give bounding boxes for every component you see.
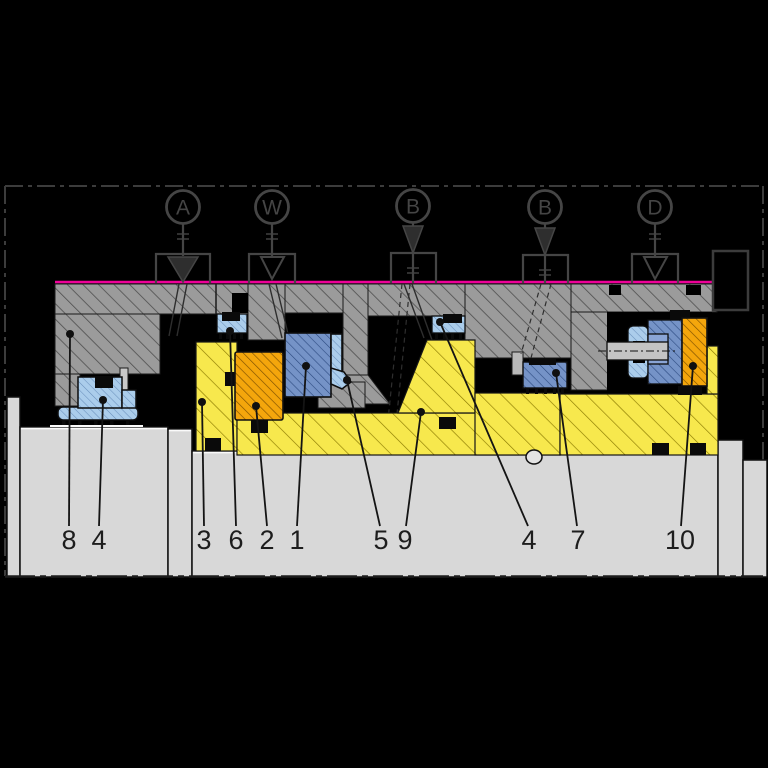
- part-label-10: 10: [665, 525, 695, 555]
- shaft-segment-3: [192, 451, 718, 577]
- shaft-step-right-1: [718, 440, 743, 577]
- part-label-2: 2: [259, 525, 274, 555]
- part-label-5: 5: [373, 525, 388, 555]
- part-label-4-left: 4: [91, 525, 106, 555]
- primary-ring-assembly: [285, 333, 351, 397]
- part-label-1: 1: [289, 525, 304, 555]
- seat-ring-right: [682, 318, 707, 386]
- shaft-groove-notch: [526, 450, 542, 464]
- part-label-3: 3: [196, 525, 211, 555]
- equipment-outline-box: [713, 251, 748, 310]
- part-label-8: 8: [61, 525, 76, 555]
- shaft-step-left: [7, 397, 20, 577]
- seal-drawing-canvas: A W B B: [0, 0, 768, 768]
- port-letter: W: [262, 197, 282, 220]
- part-label-7: 7: [570, 525, 585, 555]
- shaft-segment-2: [168, 429, 192, 577]
- port-letter: B: [406, 196, 420, 219]
- seal-cross-section-svg: A W B B: [0, 0, 768, 768]
- part-label-9: 9: [397, 525, 412, 555]
- part-label-6: 6: [228, 525, 243, 555]
- housing-step-tab: [512, 352, 523, 375]
- port-letter: B: [538, 197, 552, 220]
- port-letter: D: [647, 197, 662, 220]
- seat-ring-left: [235, 352, 283, 420]
- port-letter: A: [176, 197, 190, 220]
- shaft-step-right-2: [743, 460, 767, 577]
- part-label-4-right: 4: [521, 525, 536, 555]
